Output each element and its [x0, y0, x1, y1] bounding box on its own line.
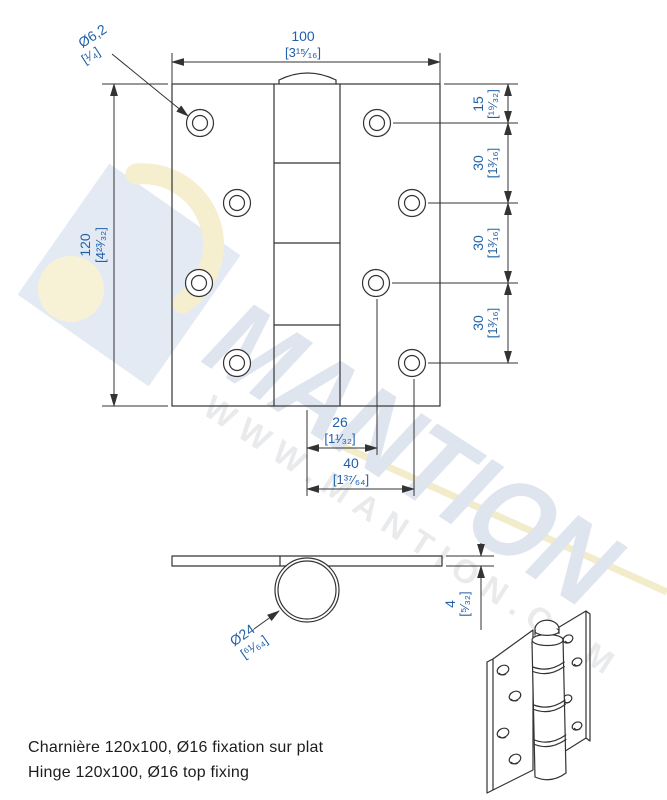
svg-text:[4²³⁄₃₂]: [4²³⁄₃₂]	[93, 227, 108, 263]
dim-label-right-3: 30 [1³⁄₁₆]	[470, 308, 500, 339]
iso-front-leaf	[493, 630, 533, 790]
svg-text:[1³⁄₁₆]: [1³⁄₁₆]	[485, 228, 500, 259]
svg-text:15: 15	[470, 96, 486, 112]
screw-hole	[224, 350, 251, 377]
side-view: Ø24 [⁶¹⁄₆₄] 4 [⁵⁄₃₂]	[172, 543, 494, 662]
dim-label-hole-diameter: Ø6,2 [¹⁄₄]	[70, 21, 118, 67]
svg-text:30: 30	[470, 155, 486, 171]
iso-barrel-top	[532, 635, 563, 646]
screw-hole	[363, 270, 390, 297]
svg-text:[1¹⁄₃₂]: [1¹⁄₃₂]	[324, 431, 355, 446]
svg-text:[1³⁷⁄₆₄]: [1³⁷⁄₆₄]	[333, 472, 369, 487]
pin-cap-dome	[279, 73, 336, 84]
barrel-edges	[274, 84, 340, 406]
dim-label-thickness: 4 [⁵⁄₃₂]	[442, 591, 472, 616]
dim-label-offset-26: 26 [1¹⁄₃₂]	[324, 414, 355, 446]
dim-label-knuckle-diameter: Ø24 [⁶¹⁄₆₄]	[227, 618, 271, 662]
svg-text:100: 100	[291, 28, 315, 44]
dim-label-height: 120 [4²³⁄₃₂]	[77, 227, 108, 263]
knuckle-joint-lines	[274, 163, 340, 325]
dim-label-right-1: 30 [1³⁄₁₆]	[470, 148, 500, 179]
dim-label-offset-40: 40 [1³⁷⁄₆₄]	[333, 455, 369, 487]
screw-hole	[399, 190, 426, 217]
thickness-extension-lines	[446, 556, 494, 566]
leader-knuckle-diameter	[254, 611, 279, 629]
svg-text:[1³⁄₁₆]: [1³⁄₁₆]	[485, 148, 500, 179]
hinge-drawing: 100 [3¹⁵⁄₁₆] 120 [4²³⁄₃₂] Ø6,2 [¹⁄₄]	[0, 0, 667, 800]
iso-pin-cap-dome	[535, 620, 559, 630]
extension-lines	[102, 53, 518, 496]
caption-french: Charnière 120x100, Ø16 fixation sur plat	[28, 739, 323, 757]
iso-barrel-fill	[532, 638, 566, 780]
leader-hole-diameter	[112, 54, 188, 116]
dim-label-width: 100 [3¹⁵⁄₁₆]	[285, 28, 321, 60]
svg-text:40: 40	[343, 455, 359, 471]
knuckle-inner-circle	[278, 561, 336, 619]
screw-hole	[187, 110, 214, 137]
svg-text:4: 4	[442, 600, 458, 608]
screw-hole	[186, 270, 213, 297]
svg-text:[¹⁹⁄₃₂]: [¹⁹⁄₃₂]	[485, 89, 500, 119]
technical-drawing-page: MANTION WWW.MANTION.COM	[0, 0, 667, 800]
svg-text:120: 120	[77, 233, 93, 257]
svg-text:[1³⁄₁₆]: [1³⁄₁₆]	[485, 308, 500, 339]
screw-hole	[399, 350, 426, 377]
isometric-view	[487, 611, 590, 793]
dim-label-right-2: 30 [1³⁄₁₆]	[470, 228, 500, 259]
caption-english: Hinge 120x100, Ø16 top fixing	[28, 764, 249, 782]
svg-text:[⁵⁄₃₂]: [⁵⁄₃₂]	[457, 591, 472, 616]
iso-front-leaf-edge	[487, 659, 493, 793]
svg-text:30: 30	[470, 315, 486, 331]
svg-text:30: 30	[470, 235, 486, 251]
svg-text:[3¹⁵⁄₁₆]: [3¹⁵⁄₁₆]	[285, 45, 321, 60]
dim-label-right-0: 15 [¹⁹⁄₃₂]	[470, 89, 500, 119]
screw-hole	[364, 110, 391, 137]
front-view: 100 [3¹⁵⁄₁₆] 120 [4²³⁄₃₂] Ø6,2 [¹⁄₄]	[70, 21, 518, 496]
knuckle-outer-circle	[275, 558, 339, 622]
screw-hole	[224, 190, 251, 217]
svg-text:26: 26	[332, 414, 348, 430]
